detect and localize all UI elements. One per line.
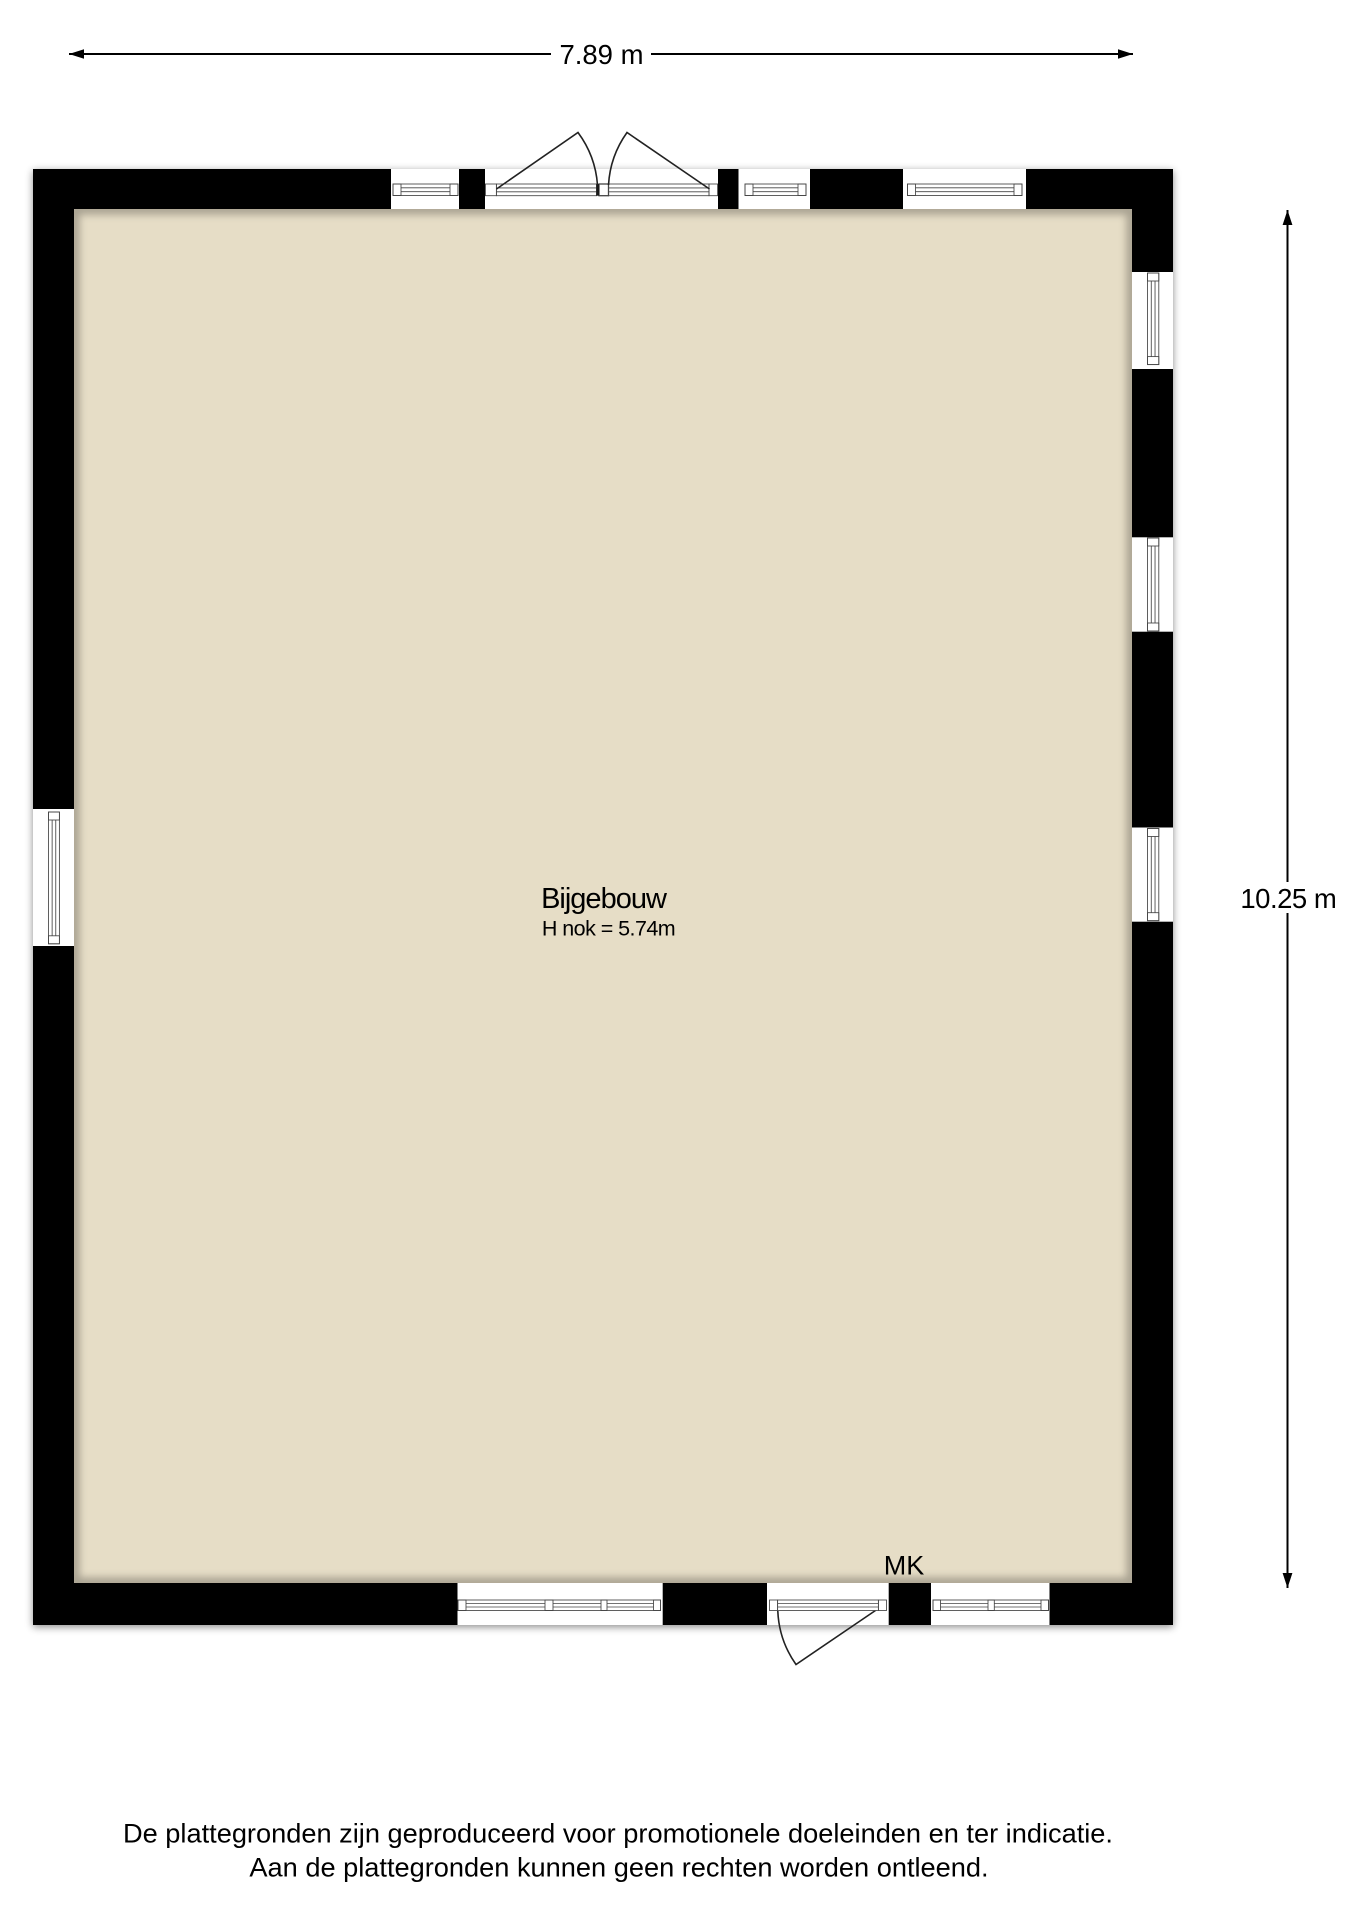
svg-text:Bijgebouw: Bijgebouw [541,883,668,915]
svg-text:H nok = 5.74m: H nok = 5.74m [542,916,675,940]
svg-text:MK: MK [884,1551,925,1581]
svg-text:De plattegronden zijn geproduc: De plattegronden zijn geproduceerd voor … [123,1818,1113,1849]
svg-text:10.25 m: 10.25 m [1240,883,1336,914]
svg-text:7.89 m: 7.89 m [559,39,643,70]
svg-text:Aan de plattegronden kunnen ge: Aan de plattegronden kunnen geen rechten… [249,1852,988,1883]
